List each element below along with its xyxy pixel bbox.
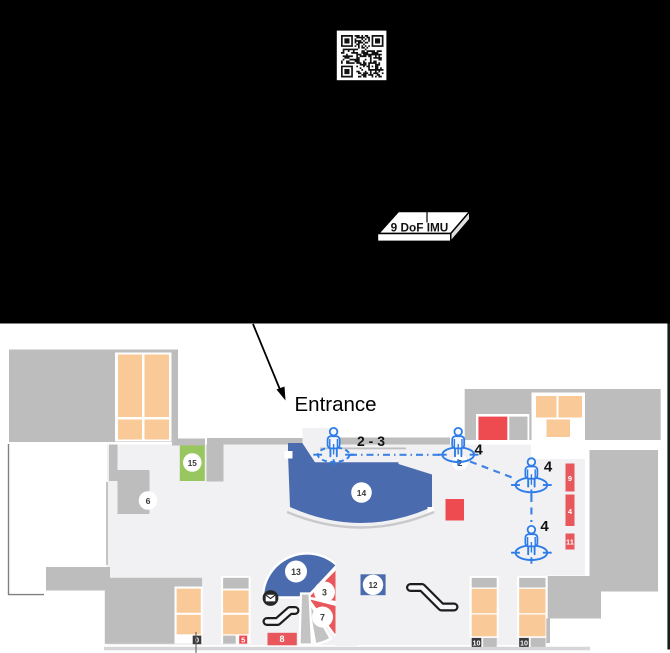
svg-text:4: 4 [540, 518, 549, 535]
svg-text:10: 10 [520, 638, 528, 647]
svg-text:7: 7 [320, 613, 325, 623]
svg-text:15: 15 [188, 459, 198, 468]
svg-text:4: 4 [474, 442, 483, 459]
svg-text:14: 14 [357, 488, 367, 498]
svg-text:9: 9 [568, 474, 572, 483]
svg-text:10: 10 [473, 638, 481, 647]
svg-text:12: 12 [368, 581, 378, 590]
svg-text:Entrance: Entrance [295, 393, 377, 416]
svg-text:8: 8 [279, 634, 284, 644]
svg-text:4: 4 [544, 459, 553, 476]
svg-text:13: 13 [291, 567, 301, 577]
svg-text:3: 3 [322, 588, 327, 598]
svg-text:2 - 3: 2 - 3 [357, 433, 385, 449]
svg-text:9 DoF IMU: 9 DoF IMU [391, 221, 449, 235]
svg-text:11: 11 [566, 538, 574, 547]
svg-text:5: 5 [241, 635, 245, 644]
svg-text:6: 6 [146, 496, 151, 506]
